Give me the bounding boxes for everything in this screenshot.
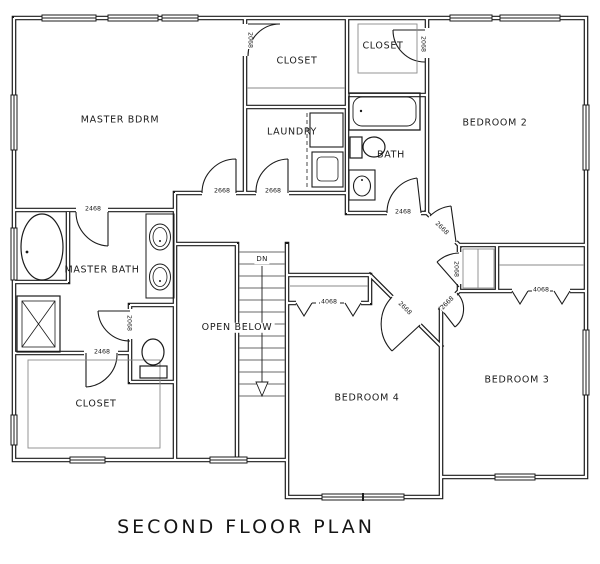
room-label-bedroom3: BEDROOM 3 xyxy=(485,375,550,386)
plan-title: SECOND FLOOR PLAN xyxy=(117,516,375,538)
door-size-bifold-bedroom4: 4068 xyxy=(320,300,338,307)
stairs-dn-label: DN xyxy=(254,256,269,264)
room-label-laundry: LAUNDRY xyxy=(267,127,317,138)
door-size-master-closet: 2068 xyxy=(246,31,253,49)
door-size-bifold-bedroom3: 4068 xyxy=(532,288,550,295)
bath-sink xyxy=(349,170,375,200)
door-size-bath: 2468 xyxy=(394,210,412,217)
stairs-down-arrow xyxy=(256,382,268,396)
room-label-closet2: CLOSET xyxy=(362,41,403,52)
vanity-sinks xyxy=(146,214,174,298)
door-size-linen-closet: 2068 xyxy=(452,260,459,278)
door-size-master-bdrm: 2668 xyxy=(213,189,231,196)
door-size-walkin-closet: 2468 xyxy=(93,350,111,357)
room-label-bedroom2: BEDROOM 2 xyxy=(463,118,528,129)
room-label-master-bdrm: MASTER BDRM xyxy=(81,115,159,126)
shower xyxy=(17,296,60,352)
walls-core xyxy=(14,18,586,497)
room-label-master-closet: CLOSET xyxy=(276,56,317,67)
door-size-laundry: 2668 xyxy=(264,189,282,196)
walls-outline xyxy=(14,18,586,497)
floor-plan: MASTER BDRM CLOSET CLOSET LAUNDRY BATH B… xyxy=(0,0,600,564)
room-label-walkin-closet: CLOSET xyxy=(75,399,116,410)
master-tub xyxy=(21,214,63,280)
room-label-bath: BATH xyxy=(377,150,405,161)
door-size-closet2: 2068 xyxy=(419,35,426,53)
door-size-toilet-room: 2068 xyxy=(125,314,132,332)
room-label-master-bath: MASTER BATH xyxy=(64,265,139,276)
toilet-master xyxy=(140,339,167,378)
fixtures xyxy=(17,93,420,378)
washer-dryer xyxy=(307,113,343,187)
room-label-open-below: OPEN BELOW xyxy=(200,323,275,333)
bath-tub xyxy=(349,93,420,130)
floor-plan-drawing xyxy=(0,0,600,564)
door-size-master-bath: 2468 xyxy=(84,207,102,214)
room-label-bedroom4: BEDROOM 4 xyxy=(335,393,400,404)
